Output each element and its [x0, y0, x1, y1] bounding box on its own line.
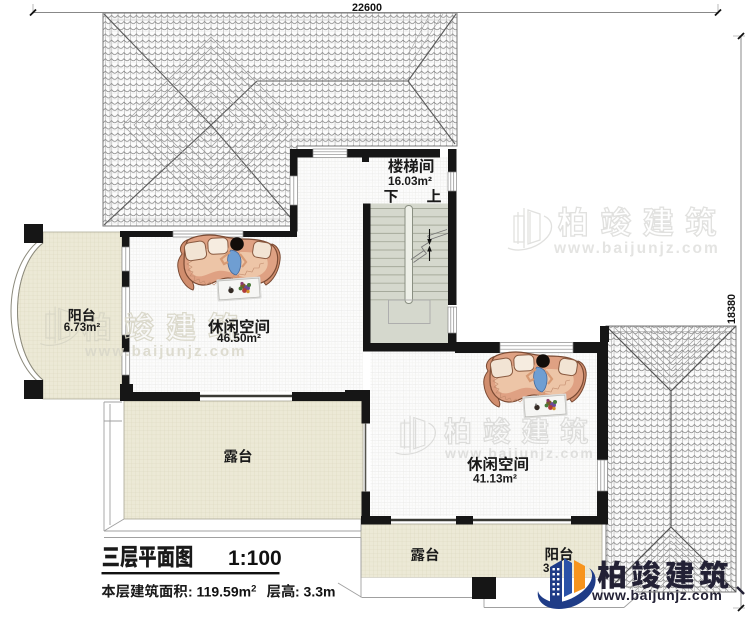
svg-text:6.73m²: 6.73m²: [64, 322, 101, 334]
svg-text:18380: 18380: [726, 294, 738, 324]
svg-text:46.50m²: 46.50m²: [217, 331, 261, 345]
svg-text:www.baijunjz.com: www.baijunjz.com: [84, 343, 246, 360]
svg-text:1:100: 1:100: [228, 547, 282, 570]
svg-text:: 119.59m2: : 119.59m2: [188, 584, 256, 600]
svg-text:www.baijunjz.com: www.baijunjz.com: [591, 587, 722, 603]
svg-text:16.03m²: 16.03m²: [388, 174, 432, 188]
svg-text:www.baijunjz.com: www.baijunjz.com: [553, 240, 720, 257]
svg-text:41.13m²: 41.13m²: [473, 472, 517, 486]
svg-text:22600: 22600: [352, 2, 382, 14]
svg-text:: 3.3m: : 3.3m: [295, 584, 335, 600]
